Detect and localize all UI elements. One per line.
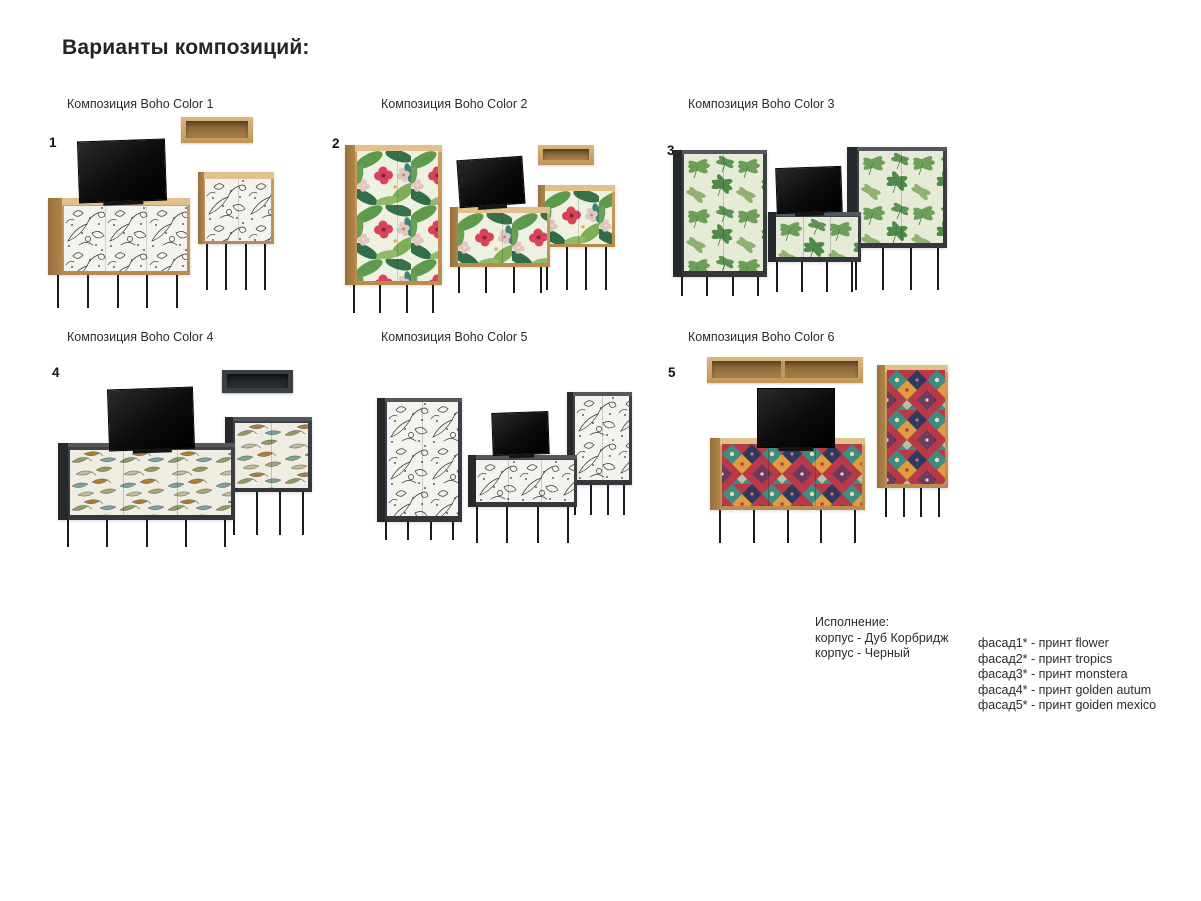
composition-number: 2 <box>332 136 340 151</box>
composition-label-5: Композиция Boho Color 5 <box>381 330 527 344</box>
print-front-flower <box>64 206 187 271</box>
sideboard <box>58 443 235 520</box>
sideboard <box>48 198 190 275</box>
composition-6-scene: 5 <box>655 350 953 550</box>
legend-title: Исполнение: <box>815 615 948 631</box>
legend-body-option: корпус - Дуб Корбридж <box>815 631 948 647</box>
composition-number: 1 <box>49 135 57 150</box>
print-front-flower <box>575 396 629 480</box>
tv <box>757 388 835 448</box>
legend-facades: фасад1* - принт flower фасад2* - принт t… <box>978 636 1156 714</box>
catalog-page: Варианты композиций: Композиция Boho Col… <box>0 0 1201 901</box>
page-title: Варианты композиций: <box>62 36 310 60</box>
tv <box>77 138 167 203</box>
composition-label-4: Композиция Boho Color 4 <box>67 330 213 344</box>
legs <box>67 520 226 547</box>
composition-number: 4 <box>52 365 60 380</box>
tv-stand <box>450 207 550 267</box>
print-front-monstera <box>684 154 763 271</box>
legs <box>385 522 454 540</box>
legend-facade-option: фасад4* - принт golden autum <box>978 683 1156 699</box>
tv <box>775 166 843 214</box>
legs <box>233 492 304 535</box>
print-front-mexico <box>887 370 945 484</box>
legs <box>574 485 625 515</box>
composition-2-scene: 2 <box>330 120 620 320</box>
print-front-flower <box>476 460 574 502</box>
legs <box>776 262 853 292</box>
print-front-flower <box>205 179 271 241</box>
tv <box>491 411 549 456</box>
composition-5-scene <box>360 355 650 555</box>
composition-3-scene: 3 <box>663 125 953 310</box>
legend-facade-option: фасад5* - принт goiden mexico <box>978 698 1156 714</box>
legs <box>458 267 542 293</box>
tv-stand <box>468 455 577 507</box>
composition-number: 5 <box>668 365 676 380</box>
print-front-tropics <box>545 191 612 244</box>
composition-label-1: Композиция Boho Color 1 <box>67 97 213 111</box>
legs <box>353 285 434 313</box>
tv <box>107 387 195 452</box>
wall-shelf <box>181 117 253 143</box>
tv-stand <box>768 212 861 262</box>
legs <box>719 510 856 543</box>
print-front-autumn <box>235 423 308 488</box>
legs <box>885 488 940 517</box>
tall-cabinet <box>847 147 947 248</box>
composition-label-3: Композиция Boho Color 3 <box>688 97 834 111</box>
wall-shelf <box>707 357 863 383</box>
composition-1-scene: 1 <box>45 115 317 315</box>
print-front-monstera <box>776 217 858 257</box>
legs <box>546 247 607 290</box>
print-front-autumn <box>70 450 231 515</box>
print-front-mexico <box>722 444 862 506</box>
legend-facade-option: фасад1* - принт flower <box>978 636 1156 652</box>
composition-4-scene: 4 <box>48 355 333 567</box>
legs <box>57 275 178 308</box>
legs <box>681 277 759 296</box>
legs <box>206 244 266 290</box>
print-front-monstera <box>859 151 943 243</box>
tall-cabinet <box>673 150 767 277</box>
composition-label-6: Композиция Boho Color 6 <box>688 330 834 344</box>
tall-cabinet <box>345 145 442 285</box>
legend-body-option: корпус - Черный <box>815 646 948 662</box>
composition-label-2: Композиция Boho Color 2 <box>381 97 527 111</box>
cabinet <box>225 417 312 492</box>
legend-body: Исполнение: корпус - Дуб Корбридж корпус… <box>815 615 948 662</box>
wall-shelf <box>222 370 293 393</box>
tv <box>456 156 525 208</box>
print-front-flower <box>387 402 458 516</box>
legend-facade-option: фасад3* - принт monstera <box>978 667 1156 683</box>
legs <box>476 507 569 543</box>
tall-cabinet <box>377 398 462 522</box>
legend-facade-option: фасад2* - принт tropics <box>978 652 1156 668</box>
tall-cabinet <box>877 365 948 488</box>
cabinet <box>198 172 274 244</box>
legs <box>855 248 939 290</box>
wall-shelf <box>538 145 594 165</box>
print-front-tropics <box>458 213 547 263</box>
print-front-tropics <box>357 151 438 281</box>
